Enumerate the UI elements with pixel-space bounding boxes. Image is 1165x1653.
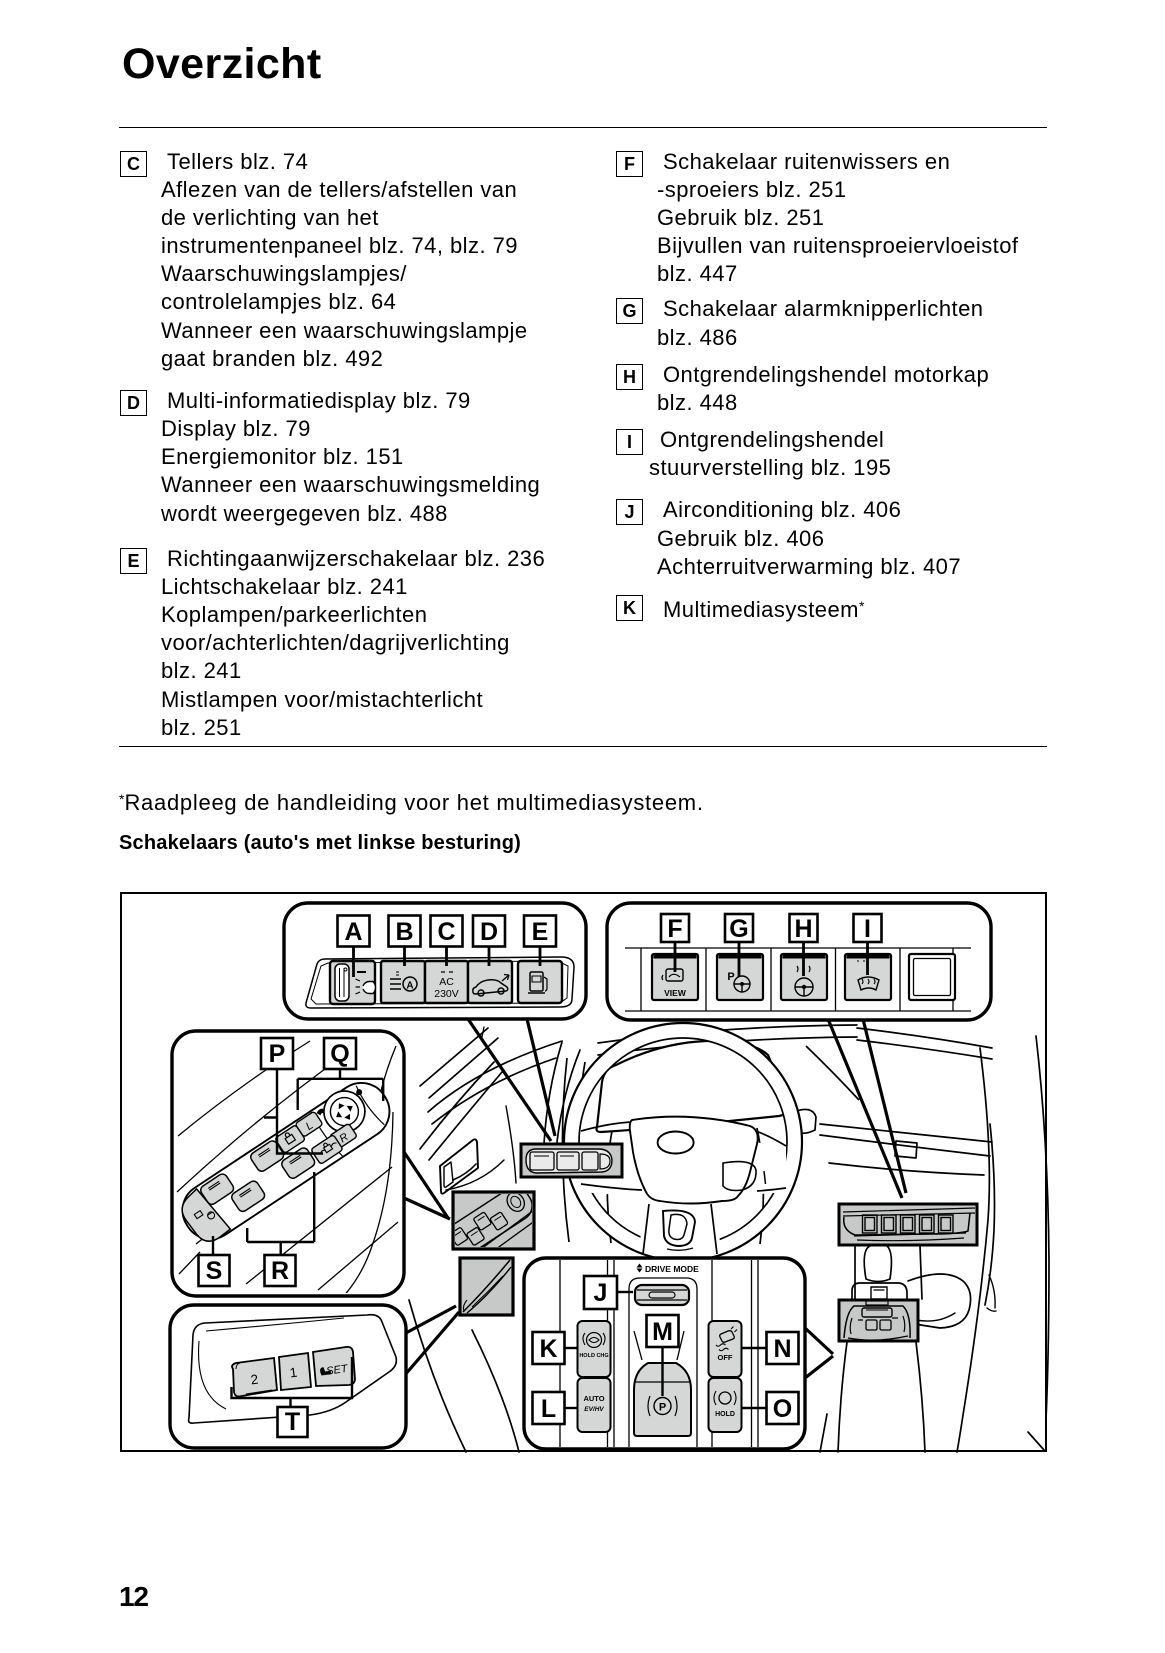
svg-text:I: I (864, 915, 871, 943)
svg-text:P: P (269, 1040, 286, 1068)
svg-text:HOLD CHG: HOLD CHG (579, 1353, 608, 1359)
svg-text:A: A (406, 981, 413, 992)
svg-text:S: S (206, 1257, 223, 1285)
svg-text:C: C (437, 918, 455, 946)
svg-text:E: E (532, 918, 549, 946)
svg-text:230V: 230V (434, 988, 459, 1000)
svg-text:F: F (667, 915, 682, 943)
svg-text:OFF: OFF (718, 1353, 733, 1362)
svg-text:N: N (773, 1335, 791, 1363)
svg-text:R: R (271, 1257, 289, 1285)
svg-text:J: J (594, 1279, 608, 1307)
svg-text:Q: Q (330, 1040, 349, 1068)
svg-text:T: T (285, 1408, 300, 1436)
svg-text:A: A (344, 918, 362, 946)
svg-text:EV/HV: EV/HV (584, 1406, 604, 1413)
svg-text:L: L (541, 1395, 556, 1423)
svg-text:G: G (729, 915, 748, 943)
svg-text:HOLD: HOLD (715, 1411, 735, 1418)
svg-text:AUTO: AUTO (583, 1394, 604, 1403)
svg-text:DRIVE MODE: DRIVE MODE (645, 1264, 699, 1274)
svg-text:P: P (659, 1402, 666, 1414)
svg-text:D: D (480, 918, 498, 946)
svg-text:VIEW: VIEW (664, 988, 687, 998)
svg-text:H: H (794, 915, 812, 943)
svg-text:AC: AC (439, 976, 454, 988)
svg-text:M: M (652, 1318, 673, 1346)
svg-text:B: B (395, 918, 413, 946)
svg-text:P: P (727, 971, 734, 983)
svg-text:O: O (773, 1395, 792, 1423)
svg-text:K: K (539, 1335, 557, 1363)
